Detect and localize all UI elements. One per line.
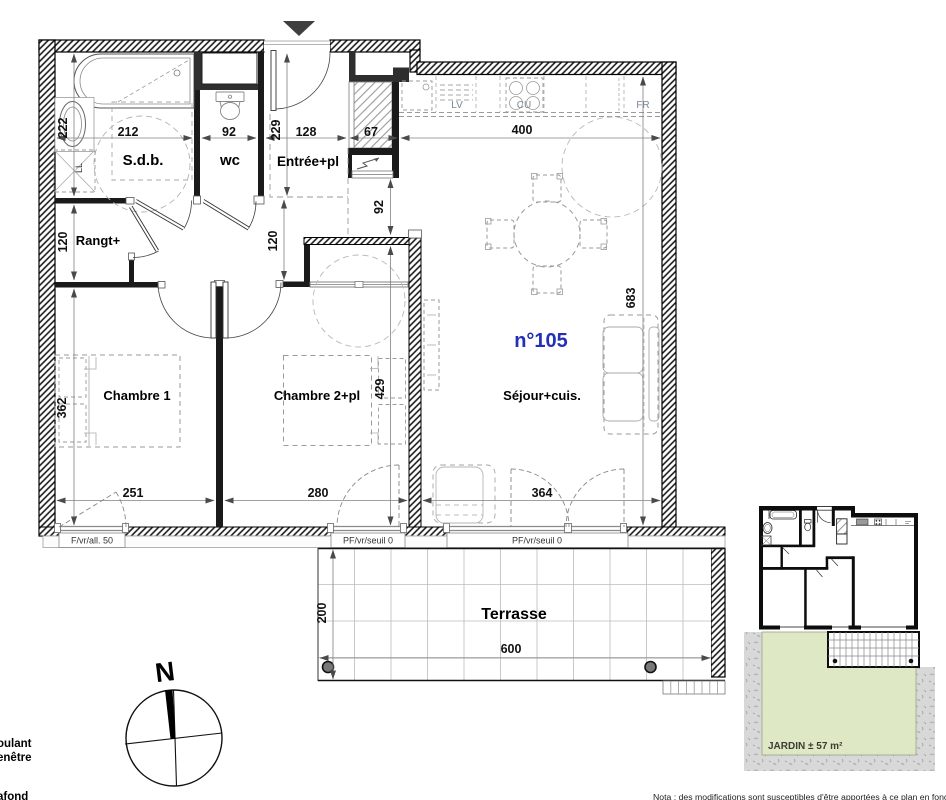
svg-text:92: 92 [372, 200, 386, 214]
svg-text:PF/vr/seuil 0: PF/vr/seuil 0 [343, 536, 393, 546]
svg-text:400: 400 [512, 123, 533, 137]
svg-text:afond: afond [0, 791, 28, 800]
svg-text:PF/vr/seuil 0: PF/vr/seuil 0 [512, 536, 562, 546]
svg-text:120: 120 [266, 231, 280, 252]
svg-text:600: 600 [501, 642, 522, 656]
svg-text:LV: LV [451, 100, 463, 111]
svg-text:CU: CU [517, 100, 531, 111]
svg-text:67: 67 [364, 125, 378, 139]
svg-text:N: N [153, 656, 176, 688]
svg-text:683: 683 [624, 288, 638, 309]
svg-text:362: 362 [55, 398, 69, 419]
svg-text:n°105: n°105 [514, 330, 568, 352]
svg-text:Séjour+cuis.: Séjour+cuis. [503, 388, 581, 403]
svg-text:S.d.b.: S.d.b. [123, 152, 164, 169]
svg-text:280: 280 [308, 486, 329, 500]
svg-text:Entrée+pl: Entrée+pl [277, 154, 339, 169]
svg-text:Terrasse: Terrasse [481, 606, 547, 623]
svg-text:429: 429 [373, 379, 387, 400]
svg-text:Rangt+: Rangt+ [76, 233, 121, 248]
svg-text:enêtre: enêtre [0, 752, 32, 764]
svg-text:128: 128 [296, 125, 317, 139]
svg-text:212: 212 [118, 125, 139, 139]
svg-text:Nota : des modifications sont: Nota : des modifications sont susceptibl… [653, 792, 946, 800]
svg-text:wc: wc [219, 152, 240, 169]
svg-text:LL: LL [74, 163, 84, 173]
svg-text:F/vr/all. 50: F/vr/all. 50 [71, 536, 113, 546]
svg-text:JARDIN ± 57 m²: JARDIN ± 57 m² [768, 741, 843, 752]
svg-text:222: 222 [56, 118, 70, 139]
svg-text:92: 92 [222, 125, 236, 139]
svg-text:251: 251 [123, 486, 144, 500]
svg-text:229: 229 [269, 120, 283, 141]
svg-text:oulant: oulant [0, 738, 32, 750]
svg-text:Chambre 1: Chambre 1 [103, 388, 170, 403]
svg-text:120: 120 [56, 232, 70, 253]
svg-text:200: 200 [315, 603, 329, 624]
svg-text:Chambre 2+pl: Chambre 2+pl [274, 388, 360, 403]
svg-text:364: 364 [532, 486, 553, 500]
